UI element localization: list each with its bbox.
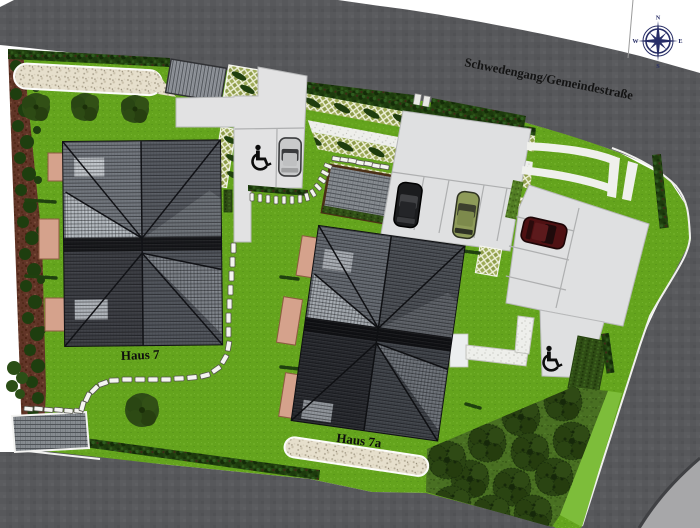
- svg-text:E: E: [678, 38, 682, 45]
- svg-text:Haus 7: Haus 7: [121, 347, 161, 363]
- svg-text:N: N: [656, 15, 661, 22]
- svg-text:W: W: [632, 38, 639, 45]
- svg-text:S: S: [656, 63, 660, 70]
